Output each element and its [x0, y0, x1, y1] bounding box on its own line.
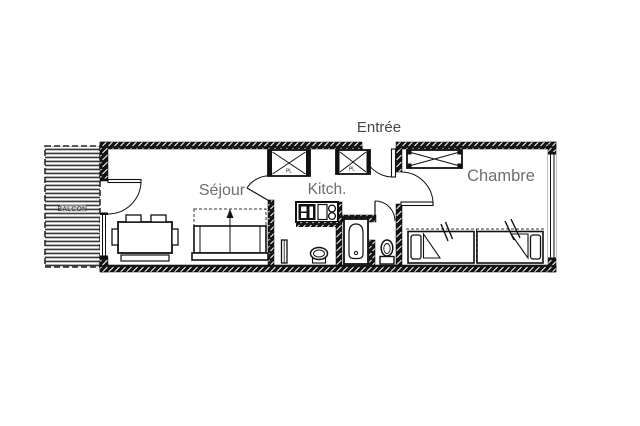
bench [121, 255, 169, 261]
chair [151, 215, 166, 222]
chair [172, 229, 178, 245]
kitchen-fixtures [282, 202, 339, 263]
tub-wc-stub-wall [369, 240, 375, 265]
bottom-wall [100, 265, 556, 272]
living-room-furniture [112, 209, 268, 261]
left-wall-lower [100, 258, 108, 272]
living-room-label: Séjour [199, 182, 246, 199]
floor-plan-drawing: BALCON [0, 0, 640, 426]
bedroom-furniture [406, 219, 545, 263]
floor-plan-page: BALCON [0, 0, 640, 426]
kitchen-label: Kitch. [308, 181, 347, 198]
top-wall-left [100, 142, 362, 149]
burner [329, 205, 336, 212]
burner [329, 213, 336, 220]
hall-bedroom-wall-lower [396, 204, 402, 265]
closet-2-label: PL [349, 167, 355, 173]
unfold-arrow-head [227, 209, 234, 218]
top-wall-right [396, 142, 556, 149]
bathtub [344, 219, 368, 264]
radiator [282, 240, 288, 263]
living-kitchen-partition [268, 200, 274, 265]
dining-table [112, 215, 178, 261]
bedroom-label: Chambre [467, 167, 535, 185]
living-kitchen-door [247, 176, 271, 202]
closet-2: PL [336, 150, 370, 174]
hall-bedroom-wall-upper [396, 149, 402, 172]
chair [112, 229, 118, 245]
single-bed-2 [477, 219, 543, 263]
sink-unit [318, 205, 327, 220]
balcony-door [108, 180, 141, 215]
bathroom-door [375, 201, 395, 221]
wardrobe [407, 150, 462, 168]
pillow [411, 235, 421, 259]
balcony: BALCON [45, 146, 100, 267]
washbasin [311, 248, 328, 264]
chair [126, 215, 141, 222]
balcony-label: BALCON [58, 206, 88, 213]
closet-1-label: PL [286, 169, 292, 175]
closet-1: PL [268, 150, 310, 176]
pillow [531, 235, 541, 259]
storage: PL PL [268, 150, 462, 176]
single-bed-1 [408, 222, 474, 263]
bedroom-door [401, 172, 433, 206]
kitchen-counter [296, 202, 338, 227]
sofa-bed [192, 209, 268, 260]
balcony-window [100, 179, 108, 259]
toilet [380, 240, 394, 264]
left-wall-upper [100, 142, 108, 181]
bedroom-window [548, 152, 556, 260]
entrance-label: Entrée [357, 119, 401, 136]
